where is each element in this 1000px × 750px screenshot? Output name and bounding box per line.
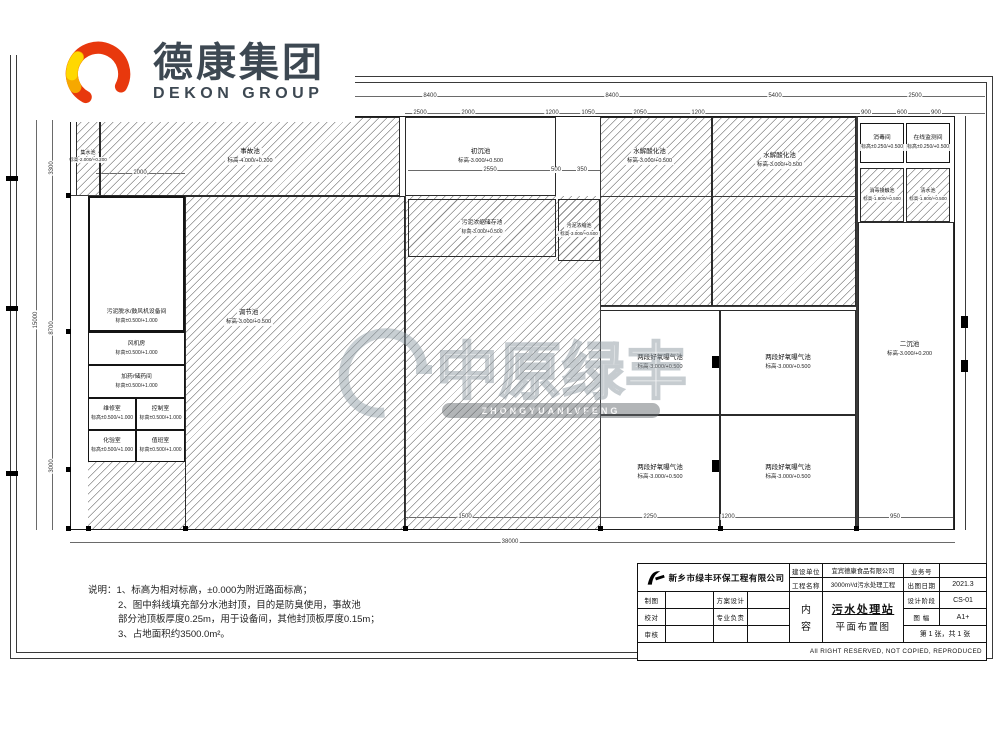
- wall: [70, 195, 100, 196]
- title-block: 新乡市绿丰环保工程有限公司 建设单位 宜宾德康食品有限公司 业务号 工程名称 3…: [637, 563, 987, 661]
- size-value: A1+: [940, 609, 986, 626]
- date-value: 2021.3: [940, 578, 986, 592]
- content-label-cell: 内 容: [790, 592, 823, 643]
- review-label: 审核: [638, 626, 666, 643]
- dim-value: 3300: [49, 160, 55, 175]
- wall: [600, 117, 601, 530]
- dim-value: 8400: [604, 93, 619, 99]
- gate-mark: [712, 460, 719, 472]
- date-label: 出图日期: [904, 578, 940, 592]
- logo-swirl-icon: [55, 27, 141, 117]
- column-mark: [86, 526, 91, 531]
- note-line: 部分池顶板厚度0.25m，用于设备间，其他封顶板厚度0.15m；: [88, 613, 448, 628]
- logo-en-text: DEKON GROUP: [153, 86, 325, 102]
- check-label: 校对: [638, 609, 666, 626]
- company-mark-icon: [646, 569, 666, 587]
- company-logo: 德康集团 DEKON GROUP: [55, 22, 355, 122]
- content-cell: 污水处理站 平面布置图: [823, 592, 904, 643]
- dim-value: 2550: [482, 167, 497, 173]
- project-label: 工程名称: [790, 578, 823, 592]
- dim-value: 1050: [580, 110, 595, 116]
- dim-value: 1200: [720, 514, 735, 520]
- dim-value: 2000: [132, 170, 147, 176]
- dim-value: 8400: [422, 93, 437, 99]
- lead-label: 专业负责: [714, 609, 748, 626]
- gate-mark: [712, 356, 719, 368]
- dim-value: 3000: [49, 458, 55, 473]
- job-value: [940, 564, 986, 578]
- column-mark: [66, 526, 71, 531]
- frame-fold-mark: [6, 176, 18, 181]
- company-cell: 新乡市绿丰环保工程有限公司: [638, 564, 790, 592]
- wall: [856, 116, 858, 530]
- dim-value: 1200: [690, 110, 705, 116]
- job-label: 业务号: [904, 564, 940, 578]
- column-mark: [183, 526, 188, 531]
- dim-value: 1200: [544, 110, 559, 116]
- column-mark: [403, 526, 408, 531]
- owner-label: 建设单位: [790, 564, 823, 578]
- draft-label: 制图: [638, 592, 666, 609]
- drawing-title: 污水处理站: [832, 601, 895, 617]
- frame-left-inner: [16, 55, 17, 653]
- frame-fold-mark: [6, 306, 18, 311]
- frame-top-inner: [340, 82, 986, 83]
- lead-value: [748, 609, 790, 626]
- review-extra: [714, 626, 748, 643]
- dim-value: 2250: [642, 514, 657, 520]
- wall: [405, 196, 406, 530]
- dim-value: 2500: [412, 110, 427, 116]
- frame-fold-mark: [6, 471, 18, 476]
- dim-value: 8700: [49, 320, 55, 335]
- dim-value: 950: [889, 514, 901, 520]
- content-label: 内: [801, 601, 811, 616]
- drawing-sheet: 事故池 标高-4.000/+0.200 集水池 标高-2.000/+0.200 …: [0, 0, 1000, 750]
- wall: [600, 196, 856, 197]
- dim-value: 900: [930, 110, 942, 116]
- dim-value: 900: [860, 110, 872, 116]
- frame-right-outer: [992, 76, 993, 659]
- gate-mark: [961, 316, 968, 328]
- content-label: 容: [801, 618, 811, 633]
- dim-value: 38000: [501, 539, 520, 545]
- dim-value: 350: [576, 167, 588, 173]
- design-company: 新乡市绿丰环保工程有限公司: [669, 572, 785, 584]
- column-mark: [66, 329, 71, 334]
- check-value: [666, 609, 714, 626]
- review-extra2: [748, 626, 790, 643]
- owner-value: 宜宾德康食品有限公司: [823, 564, 904, 578]
- dim-value: 2050: [632, 110, 647, 116]
- dim-line-top-1: [345, 96, 985, 97]
- column-mark: [718, 526, 723, 531]
- note-line: 说明：1、标高为相对标高，±0.000为附近路面标高；: [88, 584, 448, 599]
- drawing-subtitle: 平面布置图: [835, 619, 890, 633]
- dim-value: 15000: [33, 311, 39, 330]
- dim-value: 2000: [460, 110, 475, 116]
- dim-value: 1500: [457, 514, 472, 520]
- sheet-count: 第 1 张，共 1 张: [904, 626, 986, 643]
- note-line: 3、占地面积约3500.0m²。: [88, 628, 448, 643]
- note-line: 2、图中斜线填充部分水池封顶，目的是防臭使用，事故池: [88, 599, 448, 614]
- stage-label: 设计阶段: [904, 592, 940, 609]
- notes: 说明：1、标高为相对标高，±0.000为附近路面标高； 2、图中斜线填充部分水池…: [88, 584, 448, 642]
- gate-mark: [961, 360, 968, 372]
- dim-value: 600: [896, 110, 908, 116]
- size-label: 图 幅: [904, 609, 940, 626]
- plan-outline: [70, 116, 955, 530]
- copyright-note: All RIGHT RESERVED, NOT COPIED, REPRODUC…: [638, 643, 986, 660]
- dim-value: 2500: [907, 93, 922, 99]
- project-value: 3000m³/d污水处理工程: [823, 578, 904, 592]
- scheme-value: [748, 592, 790, 609]
- dim-value: 5400: [767, 93, 782, 99]
- review-value: [666, 626, 714, 643]
- column-mark: [854, 526, 859, 531]
- column-mark: [66, 467, 71, 472]
- column-mark: [598, 526, 603, 531]
- scheme-label: 方案设计: [714, 592, 748, 609]
- logo-cn-text: 德康集团: [153, 43, 325, 83]
- draft-value: [666, 592, 714, 609]
- dim-value: 500: [550, 167, 562, 173]
- frame-left-outer: [10, 55, 11, 659]
- wall: [600, 306, 856, 307]
- stage-value: CS-01: [940, 592, 986, 609]
- column-mark: [66, 193, 71, 198]
- frame-top-outer: [340, 76, 992, 77]
